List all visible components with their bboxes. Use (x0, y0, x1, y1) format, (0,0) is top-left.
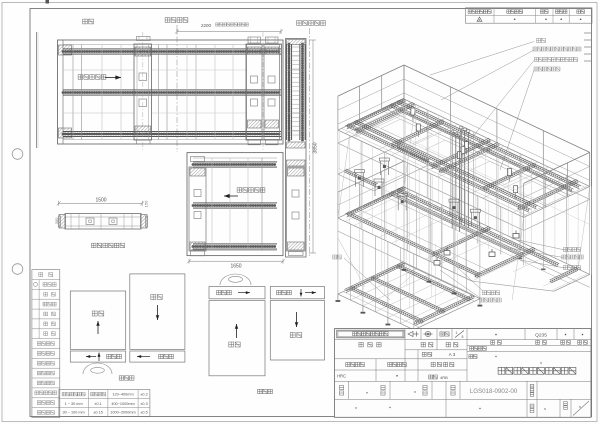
svg-text:±0.1: ±0.1 (94, 402, 101, 406)
svg-text:1: 1 (456, 331, 458, 335)
svg-text:1 ~ 30 mm: 1 ~ 30 mm (65, 402, 83, 406)
svg-text:1000~2000mm: 1000~2000mm (110, 411, 135, 415)
svg-text:2200: 2200 (201, 23, 212, 28)
svg-text:HRC: HRC (337, 374, 346, 379)
svg-text:±0.3: ±0.3 (140, 402, 147, 406)
svg-text:3850: 3850 (313, 142, 319, 153)
svg-text:1500: 1500 (95, 197, 106, 203)
svg-text:±0.15: ±0.15 (93, 411, 102, 415)
svg-text:±0.2: ±0.2 (140, 393, 147, 397)
svg-text:150: 150 (144, 200, 149, 207)
svg-text:5: 5 (462, 335, 464, 339)
svg-text:LGS018-0902-00: LGS018-0902-00 (470, 388, 518, 395)
svg-text:Q235: Q235 (535, 333, 547, 339)
svg-text:1650: 1650 (230, 264, 241, 270)
svg-text:400~1000mm: 400~1000mm (111, 402, 134, 406)
svg-text:4RB: 4RB (440, 375, 448, 380)
svg-text:±0.5: ±0.5 (140, 411, 147, 415)
svg-text:30 ~ 100 mm: 30 ~ 100 mm (62, 411, 84, 415)
svg-text:120~400mm: 120~400mm (112, 393, 133, 397)
svg-text:A 3: A 3 (449, 352, 456, 357)
